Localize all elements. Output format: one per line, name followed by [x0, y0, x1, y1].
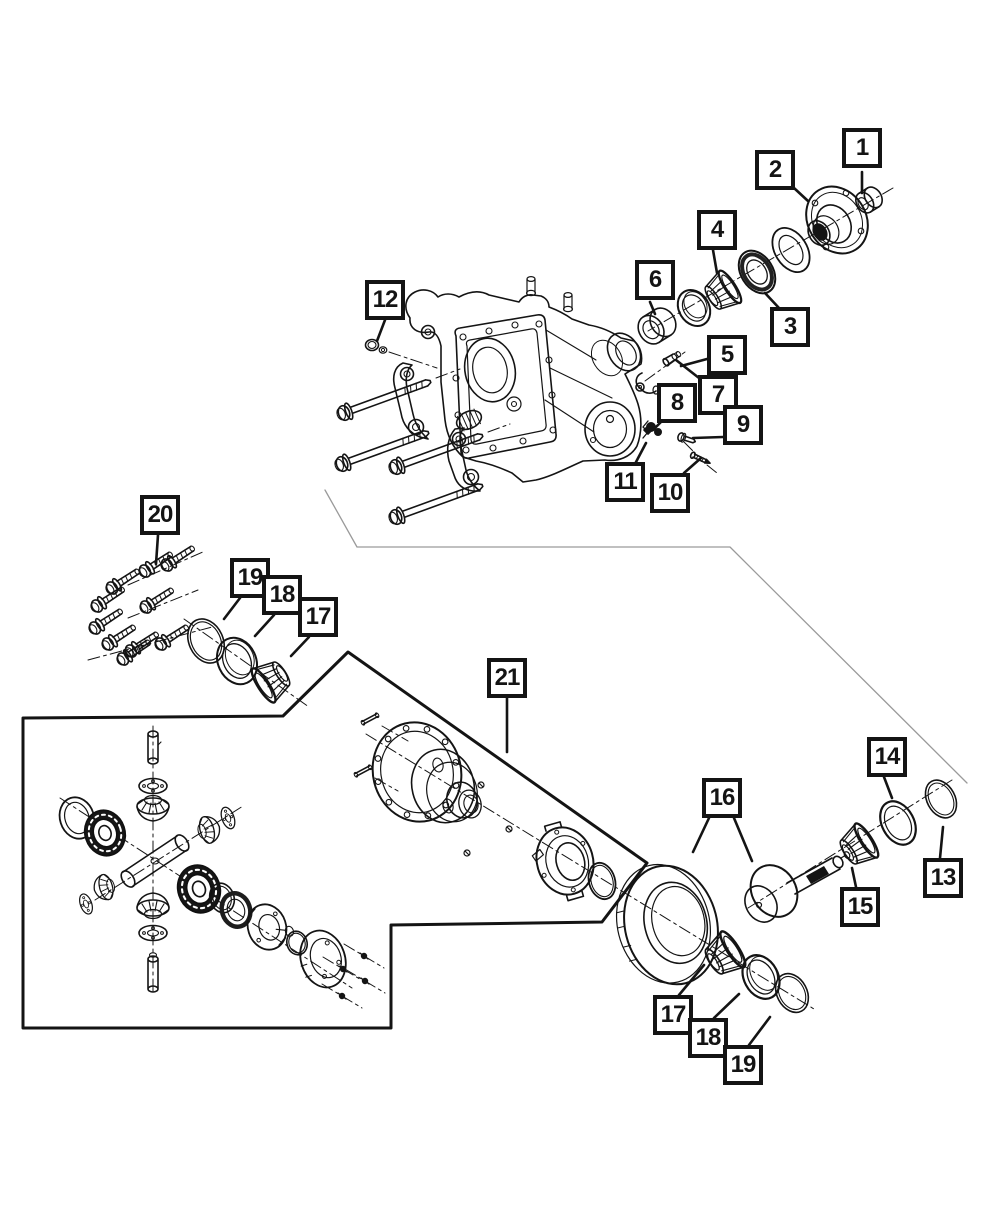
callout-20[interactable]: 20 — [140, 495, 180, 535]
callout-number: 19 — [238, 566, 263, 590]
leader-line-14 — [884, 777, 892, 798]
callout-8[interactable]: 8 — [657, 383, 697, 423]
leader-line-2 — [794, 188, 808, 201]
callout-number: 1 — [856, 136, 868, 160]
leader-line-19-lower — [749, 1017, 770, 1045]
housing-bolt — [333, 425, 432, 475]
leader-line-5 — [681, 359, 707, 366]
pinion-snap-ring — [919, 775, 963, 823]
rear-pinion-bearing — [834, 821, 882, 871]
callout-15[interactable]: 15 — [840, 887, 880, 927]
exploded-diagram-art — [0, 0, 1000, 1214]
callout-3[interactable]: 3 — [770, 307, 810, 347]
callout-number: 18 — [696, 1026, 721, 1050]
leader-line-18-lower — [714, 994, 739, 1018]
callout-number: 18 — [270, 583, 295, 607]
callout-10[interactable]: 10 — [650, 473, 690, 513]
leader-line-17-left — [291, 637, 309, 656]
callout-4[interactable]: 4 — [697, 210, 737, 250]
callout-number: 16 — [710, 786, 735, 810]
leader-line-18-left — [255, 615, 274, 636]
callout-6[interactable]: 6 — [635, 260, 675, 300]
callout-2[interactable]: 2 — [755, 150, 795, 190]
callout-17-lower[interactable]: 17 — [653, 995, 693, 1035]
right-side-gear — [172, 860, 227, 919]
callout-number: 12 — [373, 288, 398, 312]
bearing-retainer — [525, 816, 602, 907]
left-side-gear — [79, 805, 131, 861]
callout-number: 3 — [784, 315, 796, 339]
callout-number: 11 — [613, 470, 636, 494]
parts-diagram-page: 12 1 2 4 6 3 5 7 8 9 11 10 20 19 18 17 2… — [0, 0, 1000, 1214]
case-pins — [353, 712, 379, 777]
callout-13[interactable]: 13 — [923, 858, 963, 898]
callout-number: 6 — [649, 268, 661, 292]
leader-line-3 — [765, 293, 779, 308]
callout-number: 4 — [711, 218, 723, 242]
callout-number: 17 — [661, 1003, 686, 1027]
leader-line-16 — [734, 818, 752, 861]
leader-line-16 — [693, 818, 709, 852]
callout-1[interactable]: 1 — [842, 128, 882, 168]
callout-number: 7 — [712, 383, 724, 407]
callout-number: 20 — [148, 503, 173, 527]
leader-line-9 — [693, 437, 723, 438]
callout-number: 8 — [671, 391, 683, 415]
leader-line-19-left — [224, 598, 240, 619]
leader-line-15 — [852, 868, 856, 887]
callout-number: 2 — [769, 158, 781, 182]
leader-line-4 — [713, 250, 717, 273]
callout-18-left[interactable]: 18 — [262, 575, 302, 615]
callout-number: 14 — [875, 745, 900, 769]
callout-number: 5 — [721, 343, 733, 367]
pinion-mate-shaft-top — [148, 731, 161, 764]
callout-number: 10 — [658, 481, 683, 505]
callout-21[interactable]: 21 — [487, 658, 527, 698]
collapsible-spacer — [633, 303, 681, 349]
callout-number: 13 — [931, 866, 956, 890]
clutch-plate-dark — [217, 890, 254, 931]
callout-number: 15 — [848, 895, 873, 919]
callout-18-lower[interactable]: 18 — [688, 1018, 728, 1058]
small-o-ring — [284, 928, 310, 957]
callout-17-left[interactable]: 17 — [298, 597, 338, 637]
lower-shim — [769, 968, 815, 1018]
ring-gear-bolts-group — [86, 542, 197, 668]
leader-line-13 — [940, 827, 943, 858]
callout-14[interactable]: 14 — [867, 737, 907, 777]
leader-line-10 — [684, 458, 701, 473]
ring-gear-drawing — [604, 853, 730, 996]
callout-number: 21 — [495, 666, 520, 690]
callout-19-lower[interactable]: 19 — [723, 1045, 763, 1085]
pinion-gear-drawing — [739, 851, 851, 928]
callout-9[interactable]: 9 — [723, 405, 763, 445]
callout-number: 9 — [737, 413, 749, 437]
pinion-spacer — [873, 795, 923, 851]
left-differential-bearing — [248, 655, 296, 705]
differential-internals-inset — [54, 731, 369, 999]
callout-number: 19 — [731, 1053, 756, 1077]
callout-5[interactable]: 5 — [707, 335, 747, 375]
housing-bolt — [335, 374, 434, 424]
outer-pinion-bearing — [699, 268, 744, 316]
callout-number: 17 — [306, 605, 331, 629]
leader-line-12 — [377, 320, 385, 341]
lower-left-spider-gear — [91, 872, 117, 902]
right-spider-gear — [195, 814, 223, 846]
housing-bracket-1 — [394, 363, 428, 439]
differential-case-drawing — [353, 712, 619, 906]
callout-11[interactable]: 11 — [605, 462, 645, 502]
callout-12[interactable]: 12 — [365, 280, 405, 320]
callout-16[interactable]: 16 — [702, 778, 742, 818]
